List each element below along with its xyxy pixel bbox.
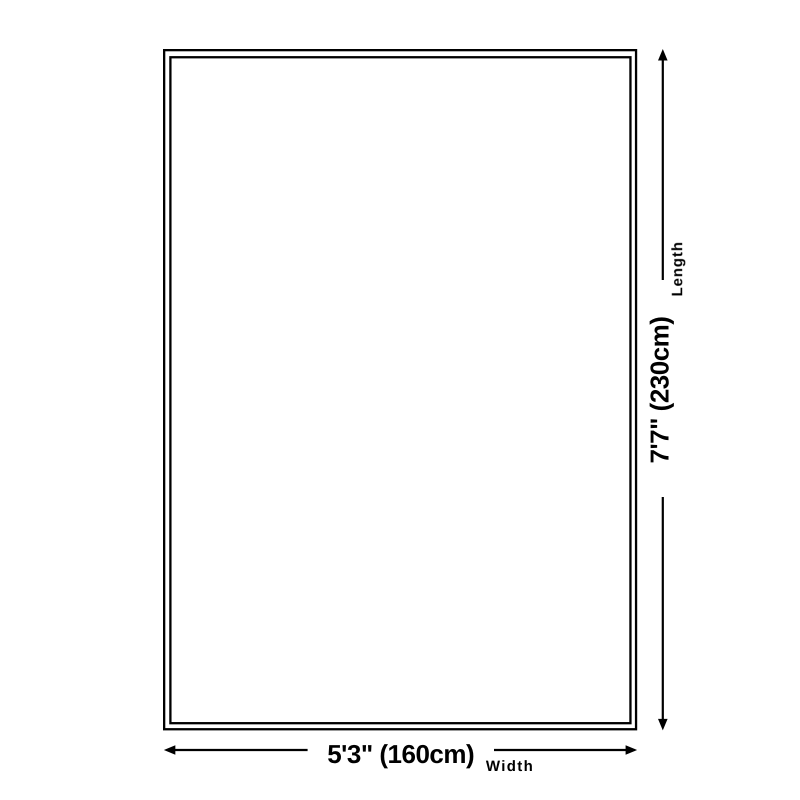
svg-text:5'3" (160cm): 5'3" (160cm) bbox=[327, 739, 474, 769]
svg-text:Width: Width bbox=[486, 758, 534, 775]
svg-text:Length: Length bbox=[669, 241, 686, 296]
svg-text:7'7" (230cm): 7'7" (230cm) bbox=[645, 317, 675, 464]
